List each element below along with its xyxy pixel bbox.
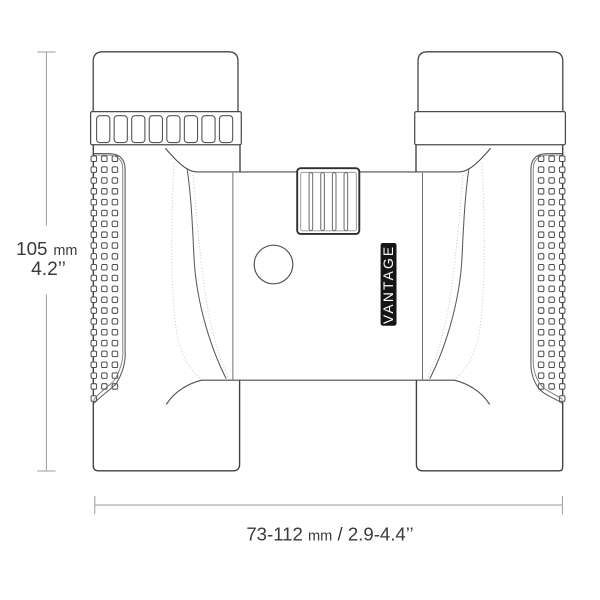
svg-text:VANTAGE: VANTAGE [381, 245, 396, 324]
svg-text:mm: mm [53, 243, 77, 259]
svg-text:4.2’’: 4.2’’ [31, 259, 66, 280]
svg-text:105: 105 [16, 238, 47, 259]
